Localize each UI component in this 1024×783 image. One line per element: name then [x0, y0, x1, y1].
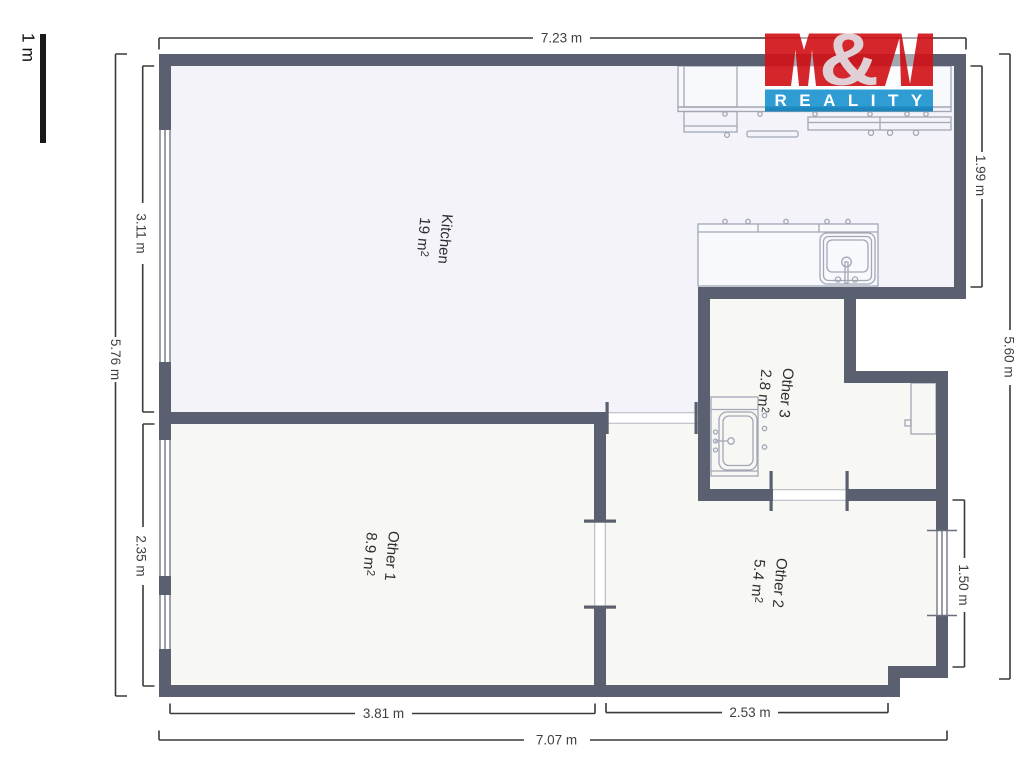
svg-text:5.76 m: 5.76 m	[108, 339, 123, 380]
svg-text:2.35 m: 2.35 m	[134, 535, 149, 576]
svg-text:2.53 m: 2.53 m	[729, 705, 770, 720]
svg-text:3.81 m: 3.81 m	[363, 706, 404, 721]
svg-text:7.07 m: 7.07 m	[536, 733, 577, 748]
svg-text:1 m: 1 m	[19, 33, 39, 62]
svg-text:REALITY: REALITY	[775, 91, 935, 110]
svg-text:&: &	[819, 18, 879, 101]
svg-text:7.23 m: 7.23 m	[541, 31, 582, 46]
svg-text:5.60 m: 5.60 m	[1002, 336, 1017, 377]
svg-text:1.50 m: 1.50 m	[956, 564, 971, 605]
svg-text:3.11 m: 3.11 m	[134, 213, 149, 253]
svg-text:1.99 m: 1.99 m	[973, 155, 988, 196]
